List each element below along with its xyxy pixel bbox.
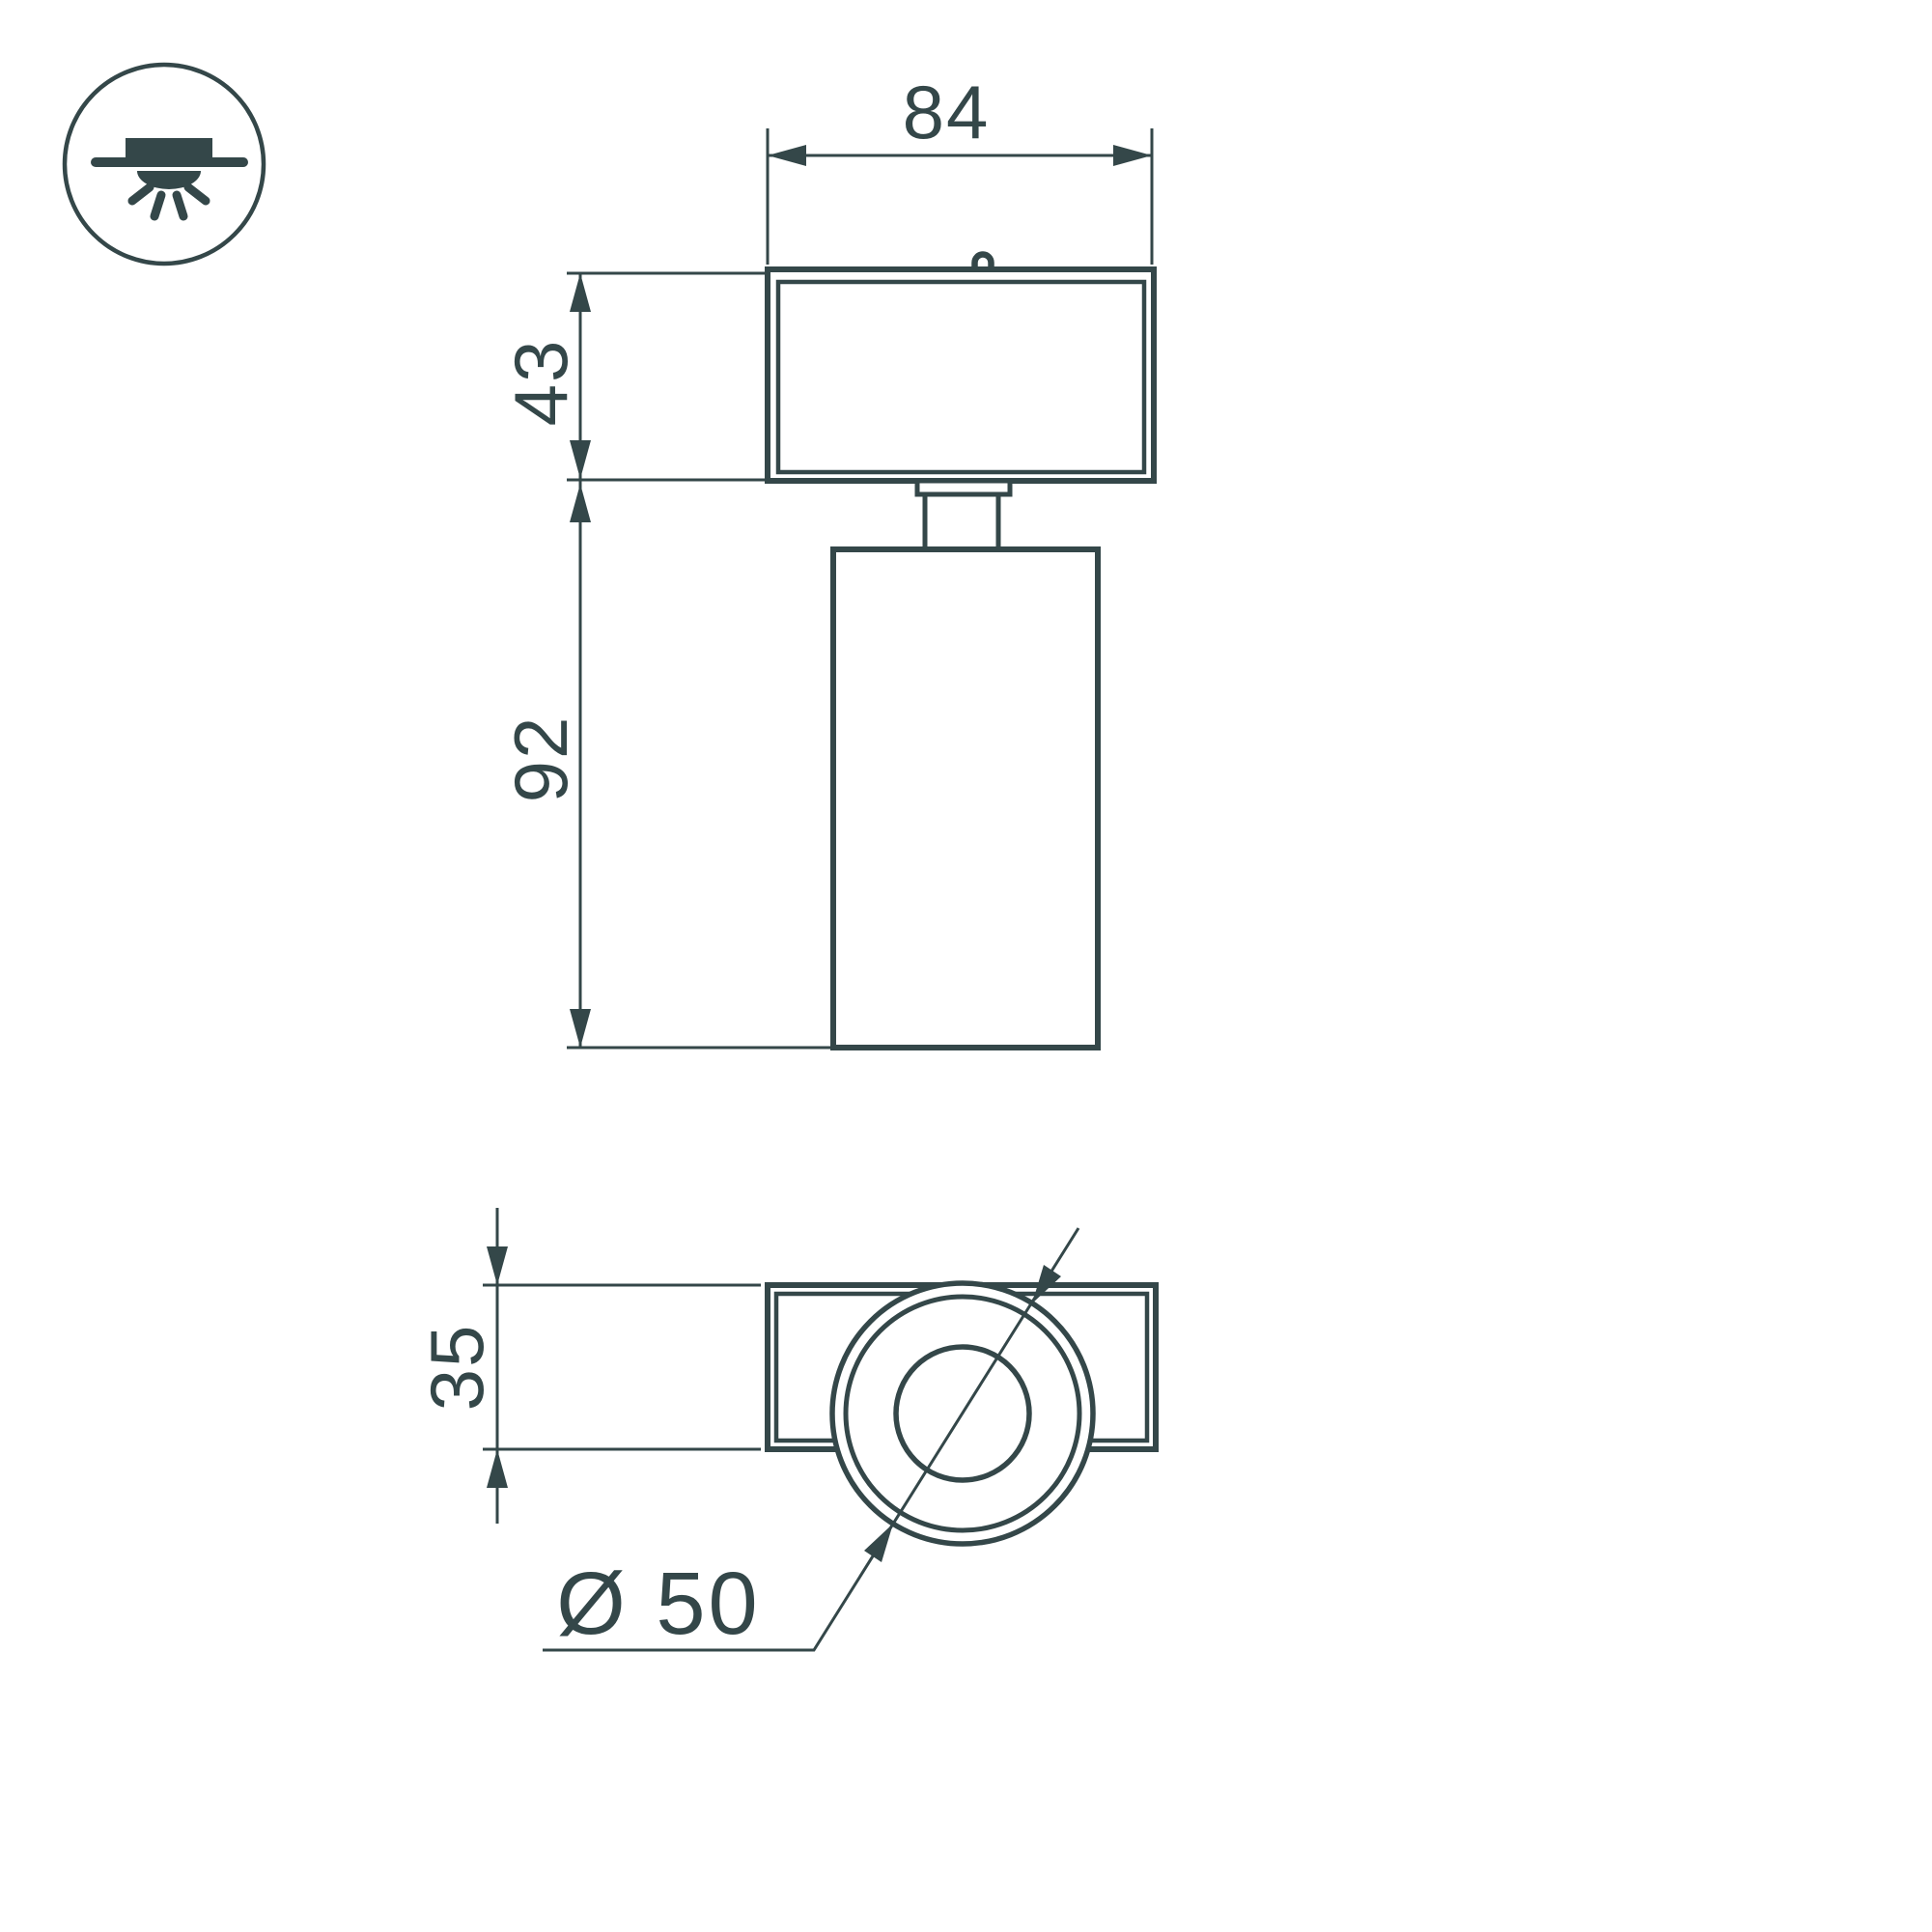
arrowhead — [570, 1009, 591, 1048]
dimension-body-height-92 — [567, 480, 830, 1048]
dimension-bracket-height-43 — [567, 273, 765, 480]
icon-light-ray — [177, 195, 183, 216]
arrowhead — [768, 145, 806, 166]
dimension-depth-35 — [483, 1208, 761, 1524]
dim-diameter-label: Ø 50 — [556, 1554, 760, 1653]
front-view: 84 43 92 — [498, 70, 1154, 1048]
bracket-outer — [768, 269, 1154, 481]
dim-body-height-label: 92 — [498, 715, 583, 803]
arrowhead — [864, 1524, 893, 1562]
arrowhead — [570, 440, 591, 479]
top-view: 35 Ø 50 — [414, 1208, 1156, 1653]
icon-light-ray — [154, 195, 161, 216]
dimension-drawing: 84 43 92 — [0, 0, 1932, 1932]
arrowhead — [570, 273, 591, 312]
arrowhead — [1113, 145, 1152, 166]
cylinder-body — [833, 549, 1098, 1048]
swivel-neck — [925, 494, 998, 549]
front-mount-bracket — [768, 269, 1154, 481]
surface-mount-ceiling-light-icon — [65, 65, 264, 264]
icon-light-ray — [188, 187, 206, 201]
dim-width-label: 84 — [903, 70, 991, 154]
arrowhead — [487, 1449, 508, 1488]
icon-light-ray — [132, 187, 150, 201]
dim-depth-label: 35 — [414, 1324, 499, 1412]
arrowhead — [487, 1246, 508, 1285]
arrowhead — [570, 484, 591, 522]
dim-bracket-height-label: 43 — [498, 339, 583, 427]
